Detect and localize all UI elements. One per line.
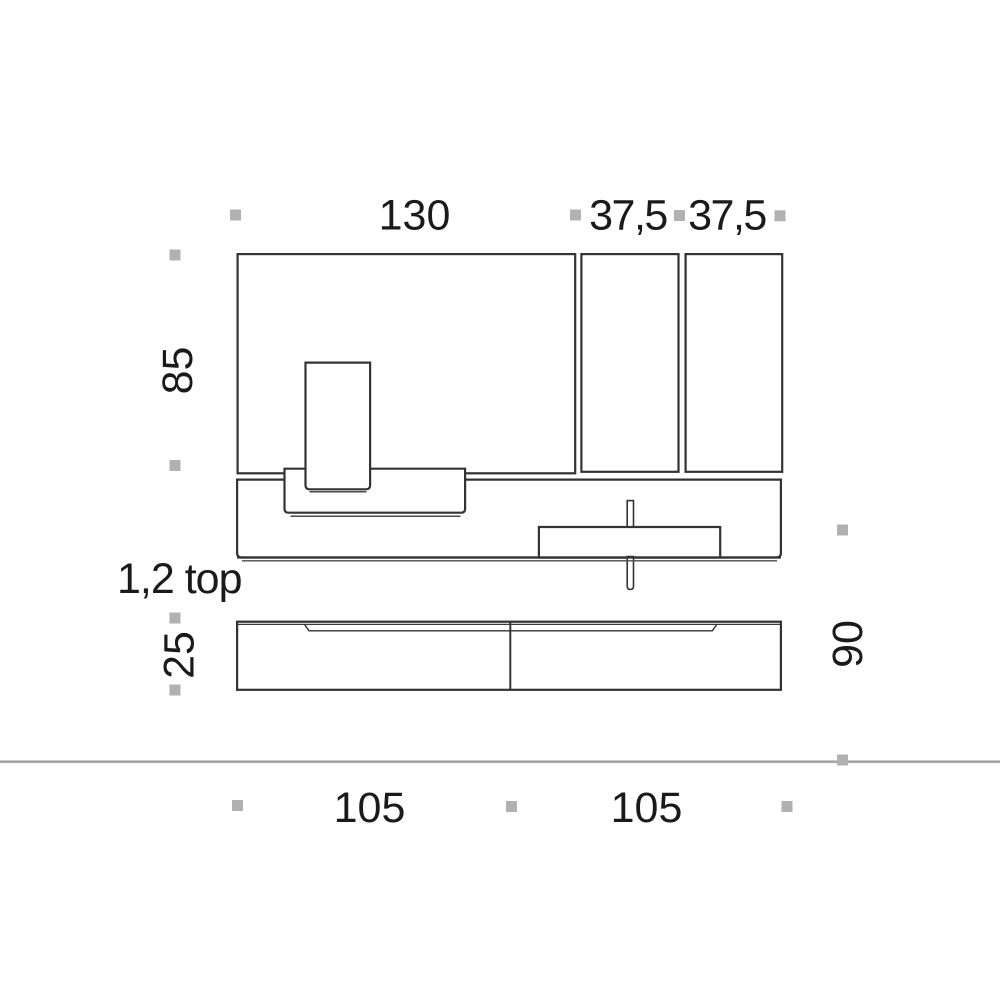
svg-text:105: 105 bbox=[334, 784, 406, 832]
svg-text:90: 90 bbox=[824, 620, 872, 668]
svg-text:25: 25 bbox=[156, 631, 204, 679]
svg-text:130: 130 bbox=[379, 192, 451, 240]
svg-text:37,5: 37,5 bbox=[589, 192, 667, 240]
svg-text:85: 85 bbox=[154, 347, 202, 395]
svg-text:37,5: 37,5 bbox=[688, 192, 766, 240]
svg-text:105: 105 bbox=[611, 784, 683, 832]
svg-text:1,2 top: 1,2 top bbox=[117, 555, 242, 603]
